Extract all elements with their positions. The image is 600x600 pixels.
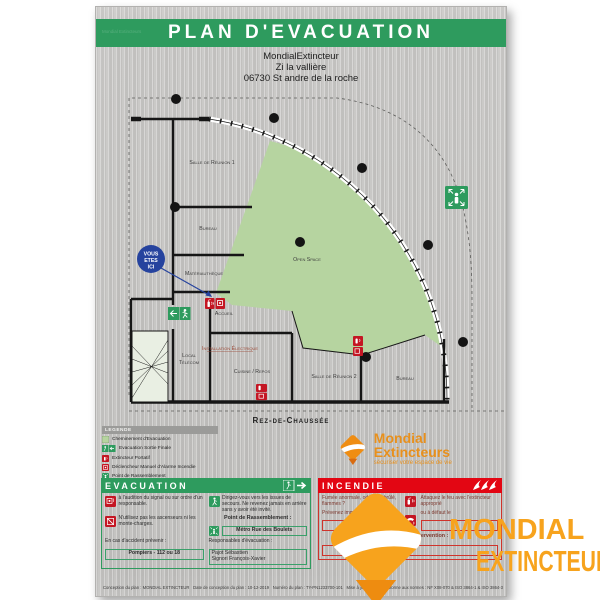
legend: LEGENDE Cheminement d'Evacuation Evacuat… (102, 426, 218, 480)
svg-text:ETES: ETES (144, 258, 158, 264)
assembly-point-icon (209, 526, 219, 536)
instruction-panels: EVACUATION à l'audition du signal ou sur… (101, 478, 502, 569)
evacuation-step: à l'audition du signal ou sur ordre d'un… (105, 496, 204, 513)
room-label-open-space: Open Space (293, 257, 321, 263)
evacuation-step: N'utilisez pas les ascenseurs ni les mon… (105, 516, 204, 536)
room-label-bureau-2: Bureau (396, 376, 414, 382)
evacuation-path-area (216, 141, 442, 355)
evacuation-panel: EVACUATION à l'audition du signal ou sur… (101, 478, 311, 569)
svg-text:VOUS: VOUS (144, 252, 159, 258)
room-label-bureau-1: Bureau (199, 226, 217, 232)
brand-logo: Mondial Extincteurs sécuriser votre espa… (336, 431, 506, 466)
exit-sign-icon (168, 307, 191, 320)
legend-item: Extincteur Portatif (102, 455, 218, 462)
legend-item: Cheminement d'Evacuation (102, 436, 218, 443)
evacuation-plan-poster: Mondial Extincteurs PLAN D'EVACUATION Mo… (0, 0, 600, 600)
no-elevator-icon (105, 516, 116, 527)
legend-header: LEGENDE (102, 426, 218, 434)
address-line-2: Zi la vallière (96, 62, 506, 73)
manual-alarm-icon (102, 464, 109, 471)
watermark-flame-icon (320, 488, 432, 600)
banner-ghost-logo: Mondial Extincteurs (102, 29, 141, 34)
exit-sign-icon (102, 445, 116, 452)
evacuation-step: Dirigez-vous vers les issues de secours.… (209, 496, 308, 513)
assembly-point-icon (445, 186, 468, 209)
assembly-point-value: Métro Rue des Boulets (222, 526, 308, 537)
extinguisher-icon (102, 455, 109, 462)
accident-value: Pompiers - 112 ou 18 (105, 549, 204, 560)
accident-block: En cas d'accident prévenir : Pompiers - … (105, 539, 204, 565)
svg-text:ICI: ICI (148, 265, 155, 271)
room-label-cuisine-repos: Cuisine / Repos (234, 369, 271, 375)
stairs (132, 331, 168, 402)
extinguisher-alarm-icons-openspace (353, 336, 363, 356)
room-label-installation-electrique: Installation Électrique (202, 345, 258, 352)
metal-plate: Mondial Extincteurs PLAN D'EVACUATION Mo… (95, 6, 507, 597)
footer-date: Date de conception du plan : 10-12-2019 (193, 585, 269, 590)
assembly-point-block: Point de Rassemblement : Métro Rue des B… (209, 516, 308, 536)
incendie-step: Attaquez le feu avec l'extincteur approp… (421, 496, 499, 508)
extinguisher-alarm-icons-cuisine (256, 384, 267, 400)
brand-tagline: sécuriser votre espace de vie (374, 460, 506, 466)
evacuation-panel-header: EVACUATION (101, 478, 311, 493)
brand-flame-icon (336, 433, 370, 465)
address-line-1: MondialExtincteur (96, 51, 506, 62)
evacuation-title: EVACUATION (105, 481, 188, 491)
exit-sign-icon (209, 496, 220, 507)
room-label-accueil: Accueil (215, 311, 234, 317)
room-label-salle-reunion-1: Salle de Réunion 1 (189, 160, 234, 166)
watermark-line-2: EXTINCTEUR (476, 546, 600, 579)
legend-item: Evacuation Sortie Finale (102, 445, 218, 452)
evacuation-path-swatch (102, 436, 109, 443)
brand-name: Mondial Extincteurs (374, 431, 506, 459)
legend-item: Déclencheur Manuel d'Alarme Incendie (102, 464, 218, 471)
room-label-salle-reunion-2: Salle de Réunion 2 (311, 374, 356, 380)
evacuation-panel-body: à l'audition du signal ou sur ordre d'un… (101, 493, 311, 569)
room-label-local-telecom-2: Télécom (179, 360, 199, 366)
room-label-local-telecom-1: Local (182, 353, 197, 359)
footer-conception: Conception du plan : MONDIAL EXTINCTEUR (103, 585, 189, 590)
watermark-line-1: MONDIAL (449, 514, 584, 547)
manual-alarm-icon (105, 496, 116, 507)
floor-label: Rez-de-Chaussée (253, 416, 330, 425)
responsable-2: Signori François-Xavier (212, 557, 305, 563)
floor-plan: Salle de Réunion 1 Bureau Matériauthèque… (96, 82, 506, 432)
exit-sign-icon (283, 480, 307, 491)
extinguisher-alarm-icons-accueil (205, 298, 225, 309)
room-label-materiautheque: Matériauthèque (185, 271, 223, 277)
title-banner: Mondial Extincteurs PLAN D'EVACUATION (96, 19, 506, 47)
footer-fine-print: Conception du plan : MONDIAL EXTINCTEUR … (101, 585, 505, 590)
poster-title: PLAN D'EVACUATION (96, 19, 506, 47)
flames-icon (472, 480, 498, 491)
responsables-block: Responsables d'évacuation : Pajot Sébast… (209, 539, 308, 565)
